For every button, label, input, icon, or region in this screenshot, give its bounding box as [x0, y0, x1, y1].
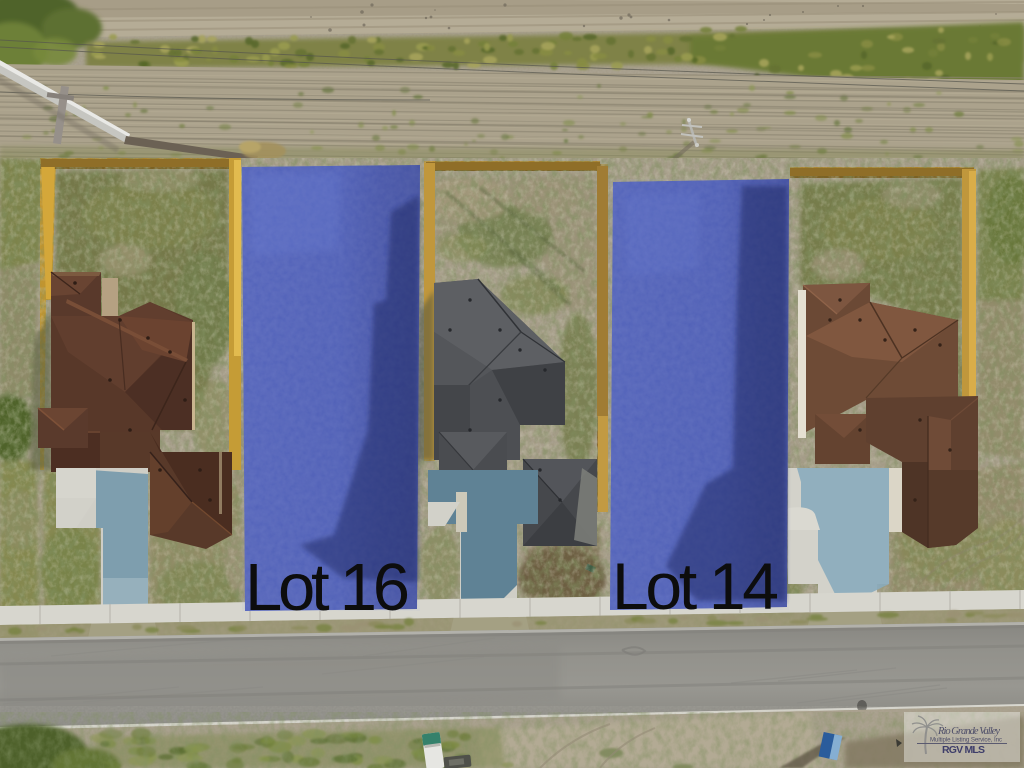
svg-text:Lot 14: Lot 14 — [612, 549, 779, 623]
svg-text:Multiple Listing Service, Inc: Multiple Listing Service, Inc — [930, 737, 1002, 744]
svg-text:RGV MLS: RGV MLS — [942, 744, 985, 756]
svg-text:Lot 16: Lot 16 — [245, 550, 410, 625]
svg-text:Rio Grande Valley: Rio Grande Valley — [937, 726, 1000, 737]
